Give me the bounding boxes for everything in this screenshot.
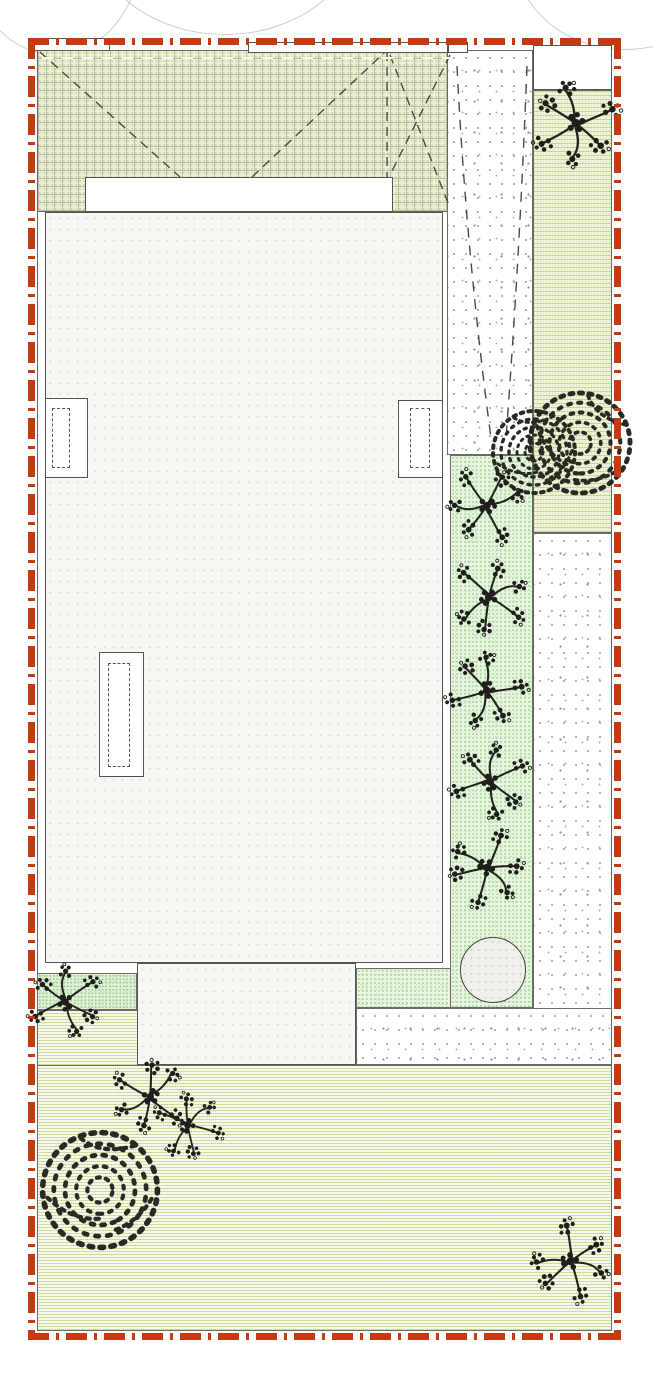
east-planting-bed	[450, 455, 533, 1008]
east-gravel-path	[533, 533, 612, 1065]
site-plan-canvas	[0, 0, 653, 1378]
canopy-facade-band	[85, 177, 393, 212]
entry-pad	[533, 45, 612, 90]
east-planting-bed-extension	[356, 968, 451, 1008]
west-bay-shaft	[52, 408, 70, 468]
boundary-west	[28, 38, 35, 1340]
boundary-north	[28, 38, 621, 45]
east-bay-shaft	[410, 408, 430, 468]
east-side-strip	[533, 90, 612, 533]
rear-patio	[137, 963, 356, 1065]
boundary-south	[28, 1333, 621, 1340]
rear-gravel-band	[356, 1008, 612, 1065]
west-green-patch	[37, 973, 137, 1010]
gravel-driveway	[447, 50, 533, 455]
interior-shaft-opening	[108, 663, 130, 767]
main-building	[45, 212, 443, 963]
boundary-east	[614, 38, 621, 1340]
rear-lawn-west	[37, 1010, 138, 1066]
neighbor-canopy-arc	[90, 0, 360, 35]
rear-lawn	[37, 1065, 612, 1331]
stone-disc-feature	[460, 937, 526, 1003]
